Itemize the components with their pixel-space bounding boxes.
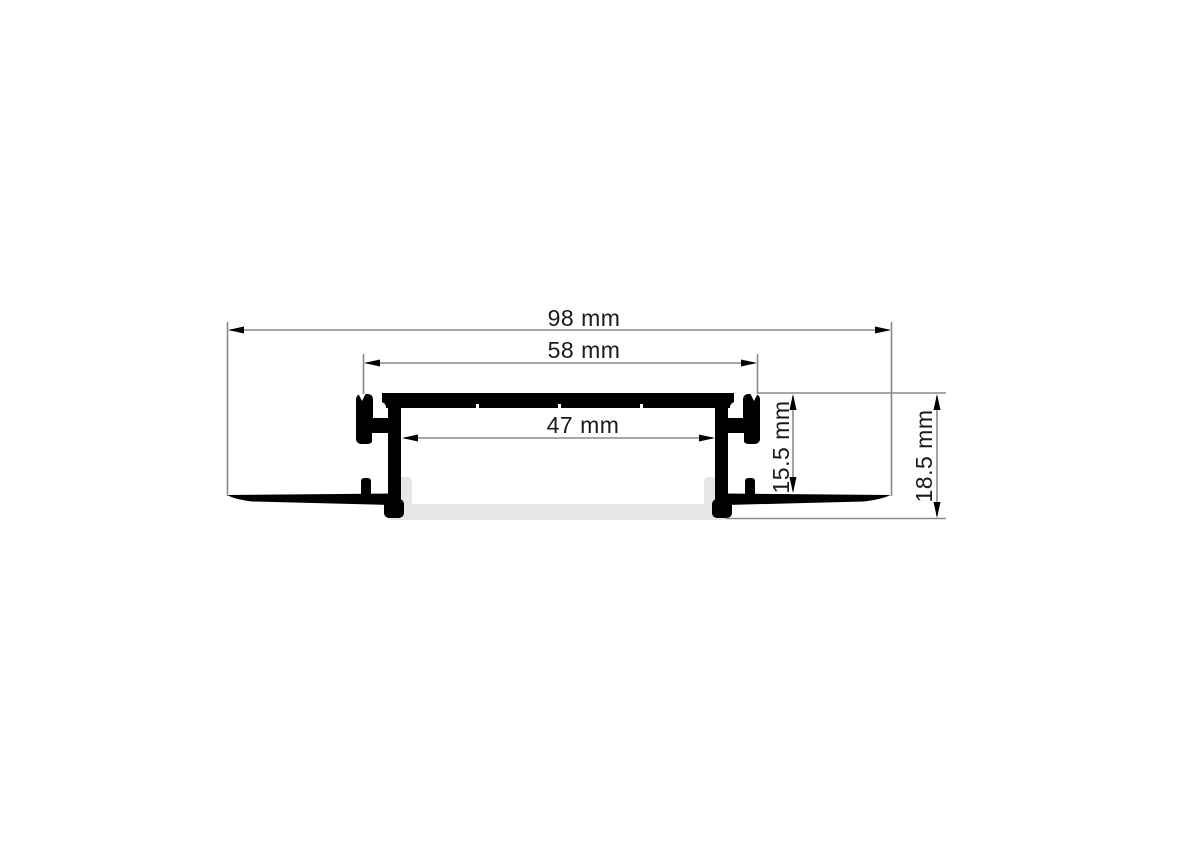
profile-right-wing [726, 494, 891, 506]
left-clip-notch [372, 433, 388, 444]
arrow-18-5-bottom [934, 502, 941, 518]
profile-right-clip-bridge [726, 418, 746, 433]
left-bar-gap [373, 392, 382, 402]
bar-groove-2 [558, 404, 561, 408]
diffuser [386, 477, 730, 520]
profile-dimension-drawing: 98 mm 58 mm 47 mm 15.5 mm 18.5 mm [0, 0, 1191, 842]
label-overall-depth: 18.5 mm [911, 410, 937, 503]
bar-groove-1 [476, 404, 479, 408]
label-inner-width: 47 mm [547, 412, 620, 438]
profile-left-wing [228, 494, 391, 506]
right-clip-gap [730, 402, 741, 413]
arrow-98-right [875, 327, 891, 334]
label-recess-depth: 15.5 mm [768, 401, 794, 494]
label-clip-width: 58 mm [548, 337, 621, 363]
right-bar-gap [734, 392, 743, 402]
arrow-47-left [402, 435, 418, 442]
left-clip-gap [375, 402, 386, 413]
label-overall-width: 98 mm [548, 305, 621, 331]
arrow-58-right [741, 360, 757, 367]
right-clip-notch [728, 433, 744, 444]
bar-groove-3 [640, 404, 643, 408]
arrow-98-left [228, 327, 244, 334]
arrow-47-right [699, 435, 715, 442]
diffuser-panel [386, 504, 730, 520]
profile-left-clip-bridge [370, 418, 390, 433]
arrow-18-5-top [934, 394, 941, 410]
technical-drawing-canvas: 98 mm 58 mm 47 mm 15.5 mm 18.5 mm [0, 0, 1191, 842]
arrow-58-left [364, 360, 380, 367]
